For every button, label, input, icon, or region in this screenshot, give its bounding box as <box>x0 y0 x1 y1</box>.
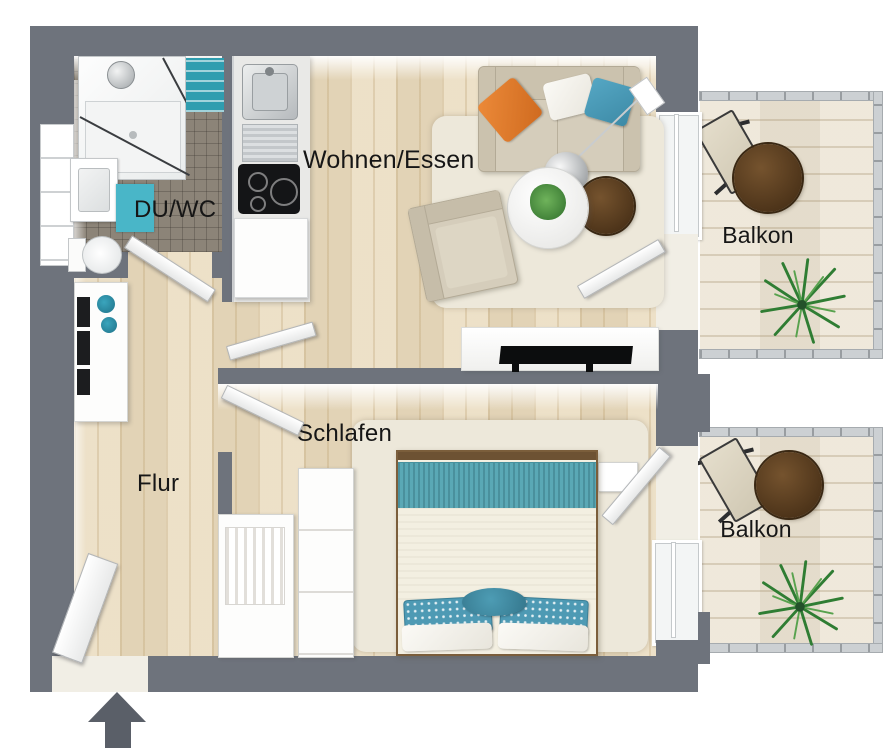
room-label-balcony-bottom: Balkon <box>696 516 816 543</box>
wall-east-3 <box>656 640 698 660</box>
palm-plant-icon <box>754 252 850 348</box>
room-label-bedroom: Schlafen <box>297 420 392 448</box>
room-label-living-dining: Wohnen/Essen <box>303 146 475 175</box>
room-label-bathroom: DU/WC <box>134 196 216 224</box>
tv-stand-leg <box>512 364 519 372</box>
burner <box>250 196 266 212</box>
kitchen-cabinet <box>234 218 308 298</box>
washbasin-bowl <box>78 168 110 212</box>
picture-frame <box>77 297 90 327</box>
balcony-bottom-railing-east <box>874 428 882 652</box>
wall-north <box>30 26 698 56</box>
picture-frame <box>77 369 90 395</box>
picture-frame <box>77 331 90 365</box>
wall-stub-southeast <box>698 612 710 664</box>
hall-bedroom-wall-stub <box>218 452 232 514</box>
balcony-top-railing-east <box>874 92 882 358</box>
bedroom-window <box>652 540 702 646</box>
faucet-icon <box>265 67 274 76</box>
window-mullion <box>672 543 675 637</box>
bed-white-pillow <box>498 622 589 651</box>
armchair-cushion <box>435 216 509 290</box>
teal-bowl <box>97 295 115 313</box>
teal-bowl <box>101 317 117 333</box>
wardrobe <box>298 468 354 658</box>
balcony-top-railing-north <box>700 92 882 100</box>
balcony-top-railing-south <box>700 350 882 358</box>
bed-teal-runner <box>398 462 596 510</box>
potted-plant-icon <box>530 184 566 220</box>
entrance-threshold <box>52 656 148 692</box>
wall-east-2 <box>656 330 698 446</box>
tv <box>499 346 633 364</box>
kitchen-sink <box>242 64 298 120</box>
towel-shelf <box>186 58 224 112</box>
room-label-balcony-top: Balkon <box>698 222 818 249</box>
bed-white-pillow <box>402 622 493 651</box>
tv-stand-leg <box>586 364 593 372</box>
washbasin <box>70 158 118 222</box>
entrance-arrow-shaft <box>105 722 131 748</box>
shower-drain <box>129 131 137 139</box>
palm-plant-icon <box>752 554 848 650</box>
bed-round-cushion <box>462 588 526 616</box>
closet-slats <box>225 527 285 605</box>
entrance-arrow-icon <box>88 692 146 722</box>
room-label-hallway: Flur <box>137 470 179 498</box>
balcony-bottom-table <box>756 452 822 518</box>
slatted-closet <box>218 514 294 658</box>
armchair <box>407 189 519 302</box>
bed-duvet <box>398 508 596 600</box>
shower-head-icon <box>107 61 135 89</box>
bed <box>396 450 598 656</box>
kitchen-drainboard <box>242 124 298 162</box>
balcony-top-table <box>734 144 802 212</box>
bed-frame-head <box>398 452 596 460</box>
sink-basin <box>252 73 288 111</box>
toilet <box>82 236 122 274</box>
cooktop <box>238 164 300 214</box>
hall-sideboard <box>74 282 128 422</box>
window-mullion <box>675 115 678 231</box>
wall-stub-between-balconies <box>698 374 710 432</box>
burner <box>248 172 268 192</box>
living-bedroom-wall-face <box>218 384 658 410</box>
burner <box>270 178 298 206</box>
floor-plan: Balkon Balkon <box>0 0 894 750</box>
